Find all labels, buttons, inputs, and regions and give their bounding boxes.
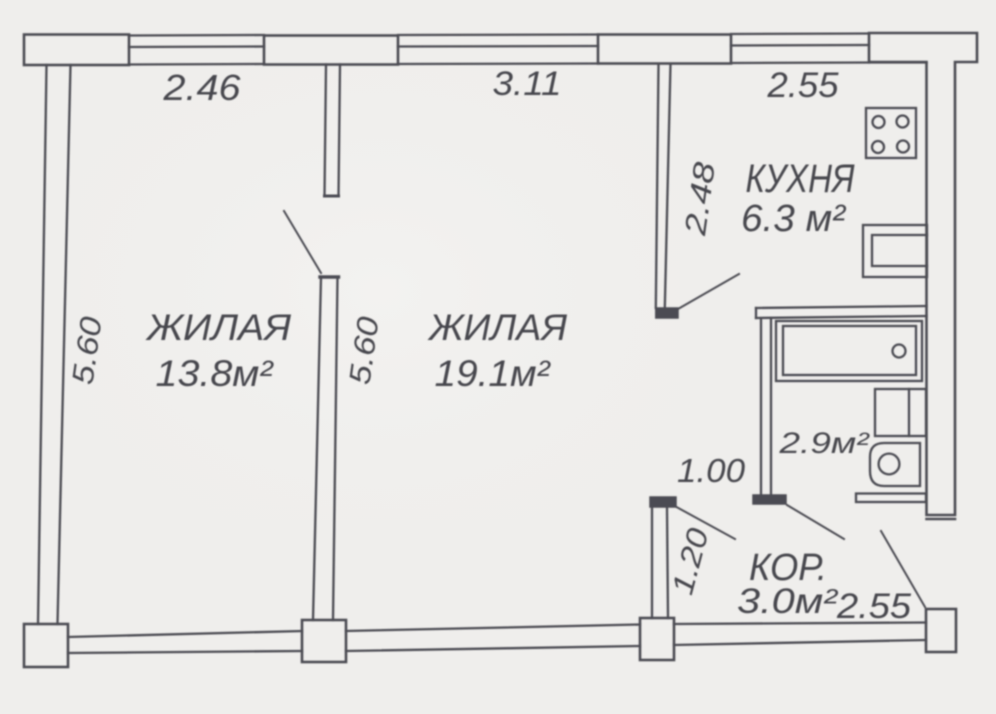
svg-text:13.8м²: 13.8м² [156, 353, 275, 394]
svg-text:19.1м²: 19.1м² [435, 353, 552, 394]
svg-text:1.00: 1.00 [677, 452, 746, 489]
svg-text:2.46: 2.46 [162, 67, 241, 108]
svg-text:3.11: 3.11 [493, 65, 562, 103]
svg-text:2.55: 2.55 [766, 66, 839, 105]
svg-text:2.55: 2.55 [836, 587, 912, 626]
svg-text:ЖИЛАЯ: ЖИЛАЯ [145, 307, 292, 348]
svg-text:КУХНЯ: КУХНЯ [746, 157, 856, 201]
svg-text:3.0м²: 3.0м² [737, 582, 839, 621]
svg-text:ЖИЛАЯ: ЖИЛАЯ [427, 307, 568, 348]
svg-text:2.9м²: 2.9м² [778, 427, 869, 460]
svg-text:6.3 м²: 6.3 м² [741, 198, 846, 240]
